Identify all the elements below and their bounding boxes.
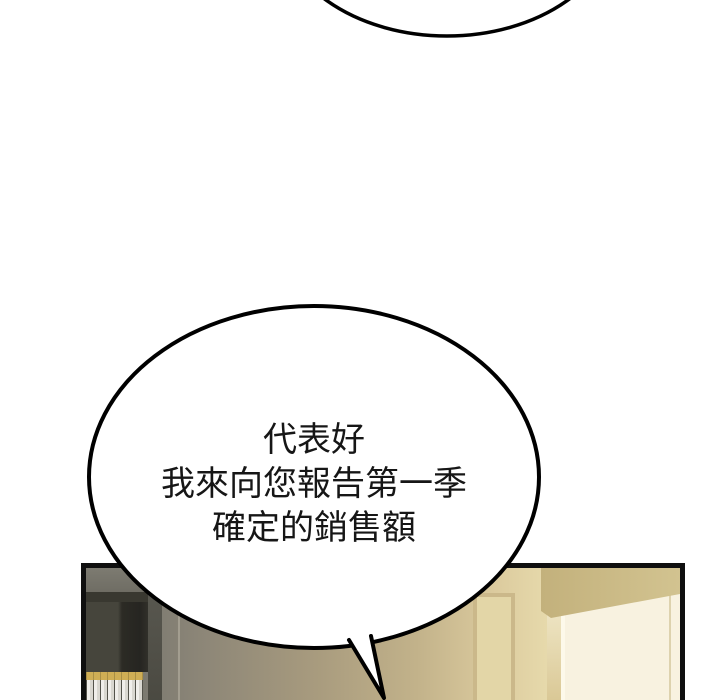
bookshelf-top — [86, 568, 148, 592]
dialogue-line-2: 我來向您報告第一季 — [104, 462, 524, 506]
book-spines — [86, 680, 143, 700]
cream-wall-seam — [669, 590, 671, 700]
comic-page: 代表好 我來向您報告第一季 確定的銷售額 — [0, 0, 720, 700]
dialogue-line-3: 確定的銷售額 — [104, 506, 524, 550]
bookshelf-interior — [86, 602, 148, 672]
dialogue-line-1: 代表好 — [104, 418, 524, 462]
wall-corner-seam — [178, 568, 180, 700]
dialogue-text: 代表好 我來向您報告第一季 確定的銷售額 — [104, 418, 524, 550]
top-partial-speech-bubble — [277, 0, 617, 36]
comic-panel — [81, 563, 685, 700]
books-gold-tops — [86, 672, 143, 680]
bookshelf-side — [148, 568, 162, 700]
door-frame — [473, 593, 515, 700]
bookshelf-edge — [86, 592, 148, 602]
